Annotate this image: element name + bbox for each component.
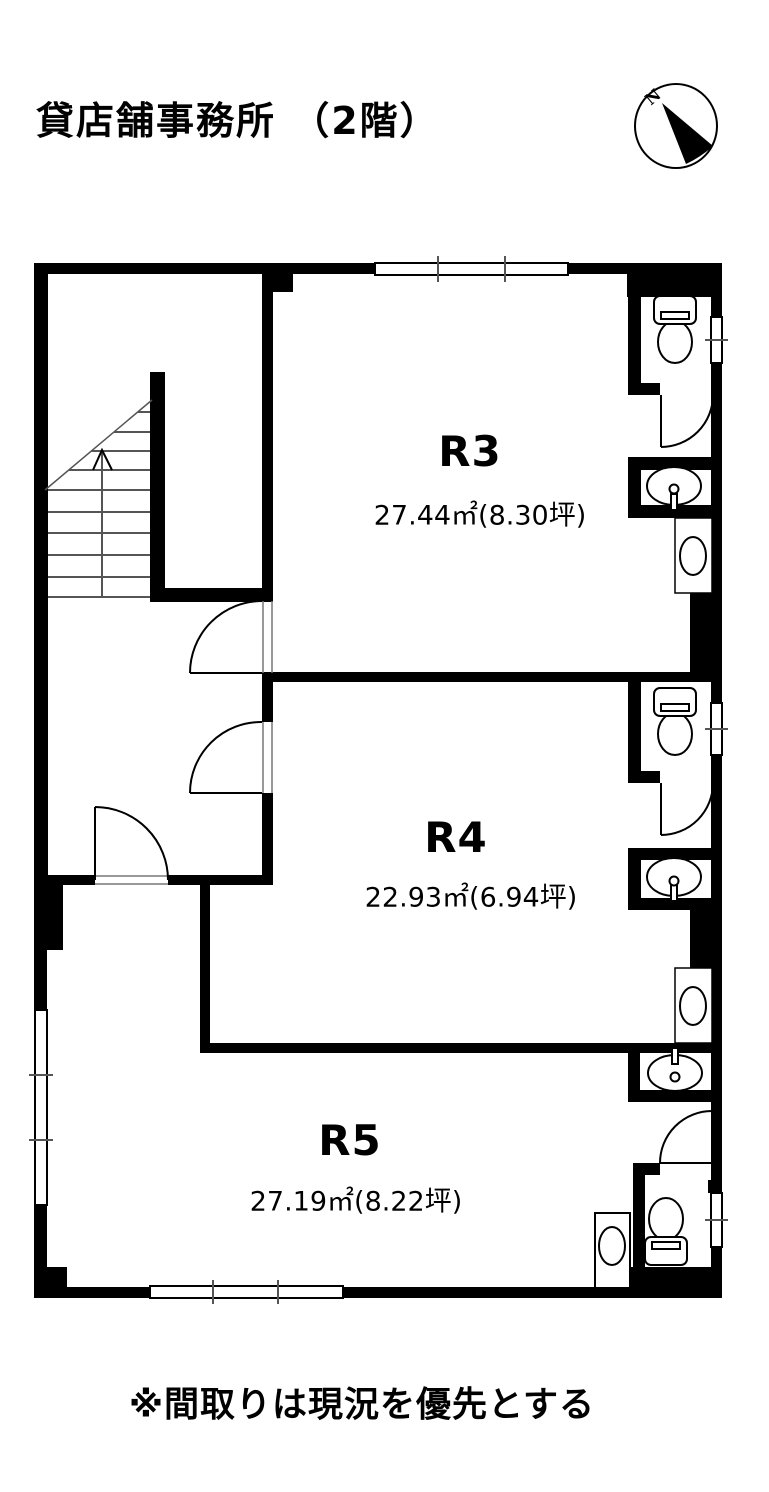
urinal-icon xyxy=(675,968,712,1043)
floorplan-drawing xyxy=(0,0,769,1492)
room-label-r5: R5 xyxy=(318,1120,382,1162)
toilet-icon xyxy=(645,1198,687,1265)
room-area-r4: 22.93㎡(6.94坪) xyxy=(365,885,577,912)
sink-icon xyxy=(647,858,701,901)
room-label-r3: R3 xyxy=(438,431,502,473)
window-icon xyxy=(705,703,728,755)
door-swing-icon xyxy=(95,807,168,880)
disclaimer-note: ※間取りは現況を優先とする xyxy=(129,1389,595,1424)
floorplan-page: 貸店舗事務所 （2階） R3 27.44㎡(8.30坪) R4 22.93㎡(6… xyxy=(0,0,769,1492)
door-swing-icon xyxy=(660,1111,712,1163)
washing-machine-pan-icon xyxy=(595,1213,630,1288)
door-swing-icon xyxy=(661,395,713,447)
door-jambs xyxy=(95,601,272,884)
window-icon xyxy=(29,1010,53,1205)
room-area-r3: 27.44㎡(8.30坪) xyxy=(374,503,586,530)
window-icon xyxy=(705,317,728,363)
door-swing-icon xyxy=(190,722,262,793)
door-swing-icon xyxy=(661,783,713,835)
room-area-r5: 27.19㎡(8.22坪) xyxy=(250,1189,462,1216)
sink-icon xyxy=(648,1048,702,1091)
window-icon xyxy=(375,256,568,282)
door-swing-icon xyxy=(190,601,262,673)
toilet-icon xyxy=(654,296,696,363)
page-title: 貸店舗事務所 （2階） xyxy=(36,102,440,140)
urinal-icon xyxy=(675,518,712,593)
toilet-icon xyxy=(654,688,696,755)
sink-icon xyxy=(647,467,701,510)
window-icon xyxy=(705,1193,728,1247)
stairs-icon xyxy=(45,400,152,597)
window-icon xyxy=(150,1280,343,1304)
room-label-r4: R4 xyxy=(424,817,488,859)
